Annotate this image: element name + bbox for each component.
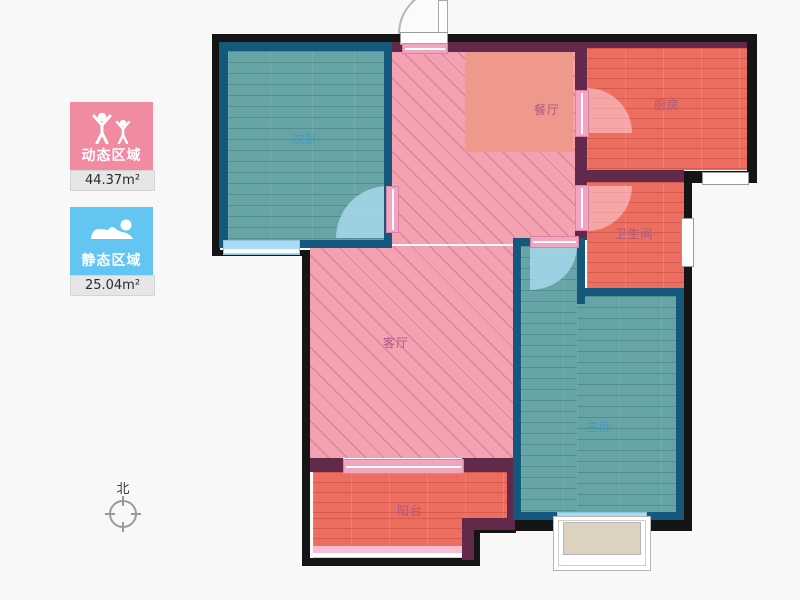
label-balcony: 阳台 xyxy=(370,502,450,519)
label-dining: 餐厅 xyxy=(507,101,587,118)
entry-door-leaf xyxy=(438,0,448,35)
room-living xyxy=(310,246,513,458)
legend-dynamic-label: 动态区域 xyxy=(70,145,153,165)
wall-bottom-balcony xyxy=(302,558,480,566)
border-secondary-bedroom-left xyxy=(219,42,228,248)
wall-right-upper xyxy=(747,34,757,183)
secondary-bedroom-window xyxy=(223,240,300,255)
legend-dynamic-zone: 动态区域 xyxy=(70,102,153,170)
room-balcony-lower xyxy=(313,518,462,548)
entry-threshold xyxy=(402,43,448,54)
wall-living-balcony-left xyxy=(310,458,343,472)
floor-plan-canvas: 动态区域 44.37m² 静态区域 25.04m² 北 xyxy=(0,0,800,600)
border-master-bedroom-left xyxy=(513,238,521,520)
people-active-icon xyxy=(86,110,138,144)
person-sleeping-icon xyxy=(86,215,138,245)
bathroom-door xyxy=(575,185,589,231)
wall-left-lower xyxy=(302,250,310,566)
legend-static-value: 25.04m² xyxy=(70,275,155,296)
balcony-window xyxy=(313,546,462,558)
bay-window-sill xyxy=(563,522,641,555)
room-dining-highlight xyxy=(465,48,573,152)
label-bathroom: 卫生间 xyxy=(594,225,674,242)
label-living: 客厅 xyxy=(356,334,436,351)
legend-static-label: 静态区域 xyxy=(70,250,153,270)
wall-balcony-se-v xyxy=(462,518,474,560)
label-master-bedroom: 主卧 xyxy=(559,418,639,435)
legend-static-zone: 静态区域 xyxy=(70,207,153,275)
label-secondary-bedroom: 次卧 xyxy=(265,130,345,147)
border-master-bedroom-right xyxy=(676,288,684,520)
master-bedroom-door xyxy=(530,236,579,248)
label-kitchen: 厨房 xyxy=(627,96,707,113)
secondary-bedroom-door xyxy=(386,186,399,233)
bathroom-window xyxy=(681,218,694,267)
kitchen-south-window xyxy=(702,172,749,185)
wall-top xyxy=(212,34,757,42)
compass-icon xyxy=(101,494,145,538)
legend-dynamic-value: 44.37m² xyxy=(70,170,155,191)
balcony-sliding-door xyxy=(343,459,464,474)
border-secondary-bedroom-top xyxy=(219,42,392,51)
wall-kitchen-bathroom-divider xyxy=(575,170,684,182)
wall-kitchen-top-inner xyxy=(587,42,747,48)
room-master-bedroom-east xyxy=(577,296,676,512)
border-master-bedroom-top-east xyxy=(577,288,684,296)
